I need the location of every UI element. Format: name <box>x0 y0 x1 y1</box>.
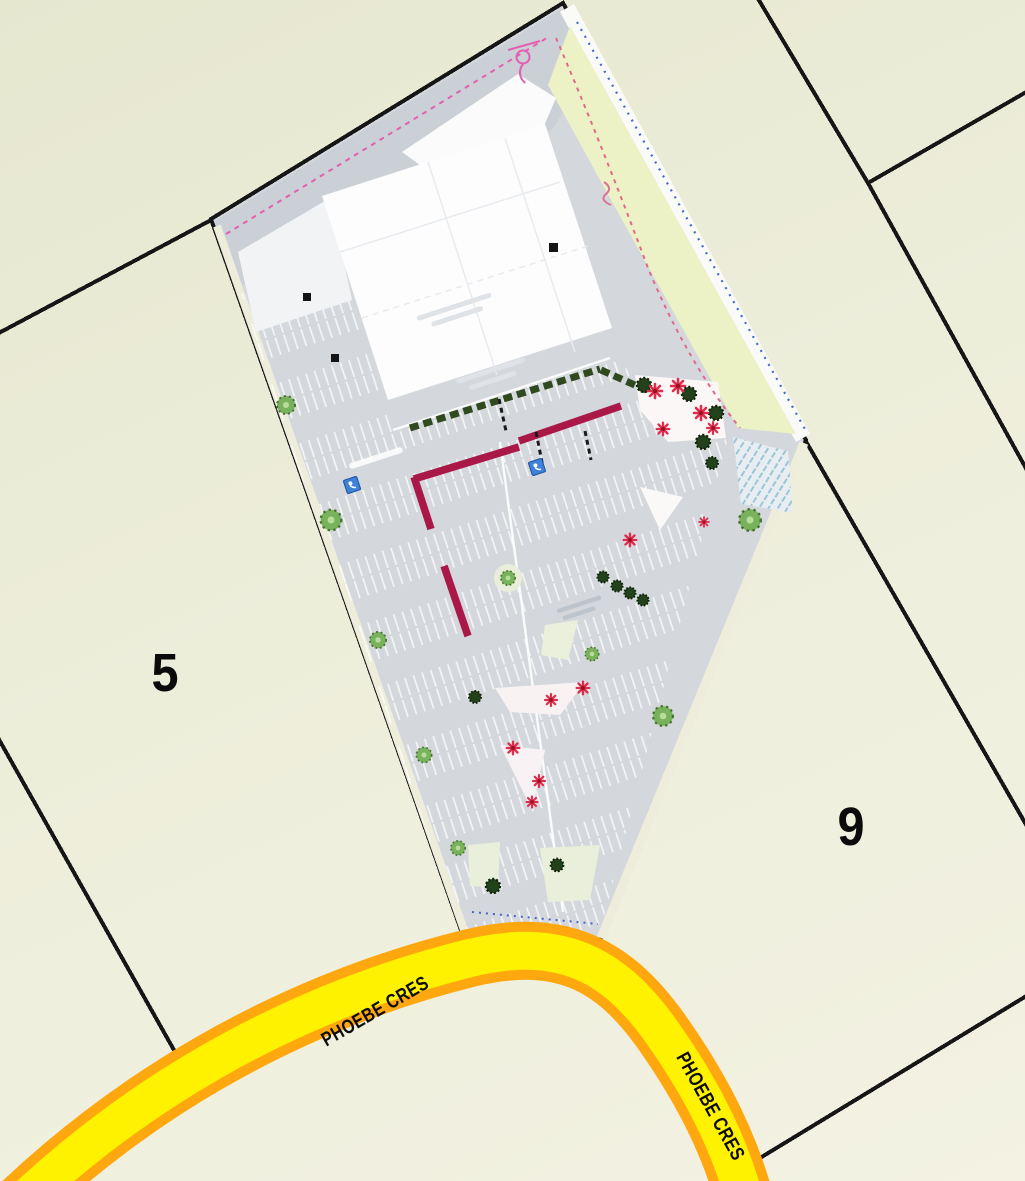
parcel-line <box>868 91 1025 183</box>
parcel-line <box>760 995 1025 1158</box>
parcel-line <box>804 438 1025 828</box>
parcel-line <box>0 736 201 1098</box>
lot-number-5: 5 <box>152 646 179 700</box>
map-graphics <box>0 0 1025 1181</box>
parcel-line <box>0 219 213 334</box>
road-surface <box>0 951 753 1181</box>
parcel-map-viewport[interactable]: 5 9 PHOEBE CRES PHOEBE CRES <box>0 0 1025 1181</box>
parcel-line <box>868 183 1025 472</box>
site-plan-overlay <box>211 3 806 941</box>
parcel-line <box>757 0 868 183</box>
road-phoebe-cres <box>0 951 753 1181</box>
lot-number-9: 9 <box>838 800 865 854</box>
